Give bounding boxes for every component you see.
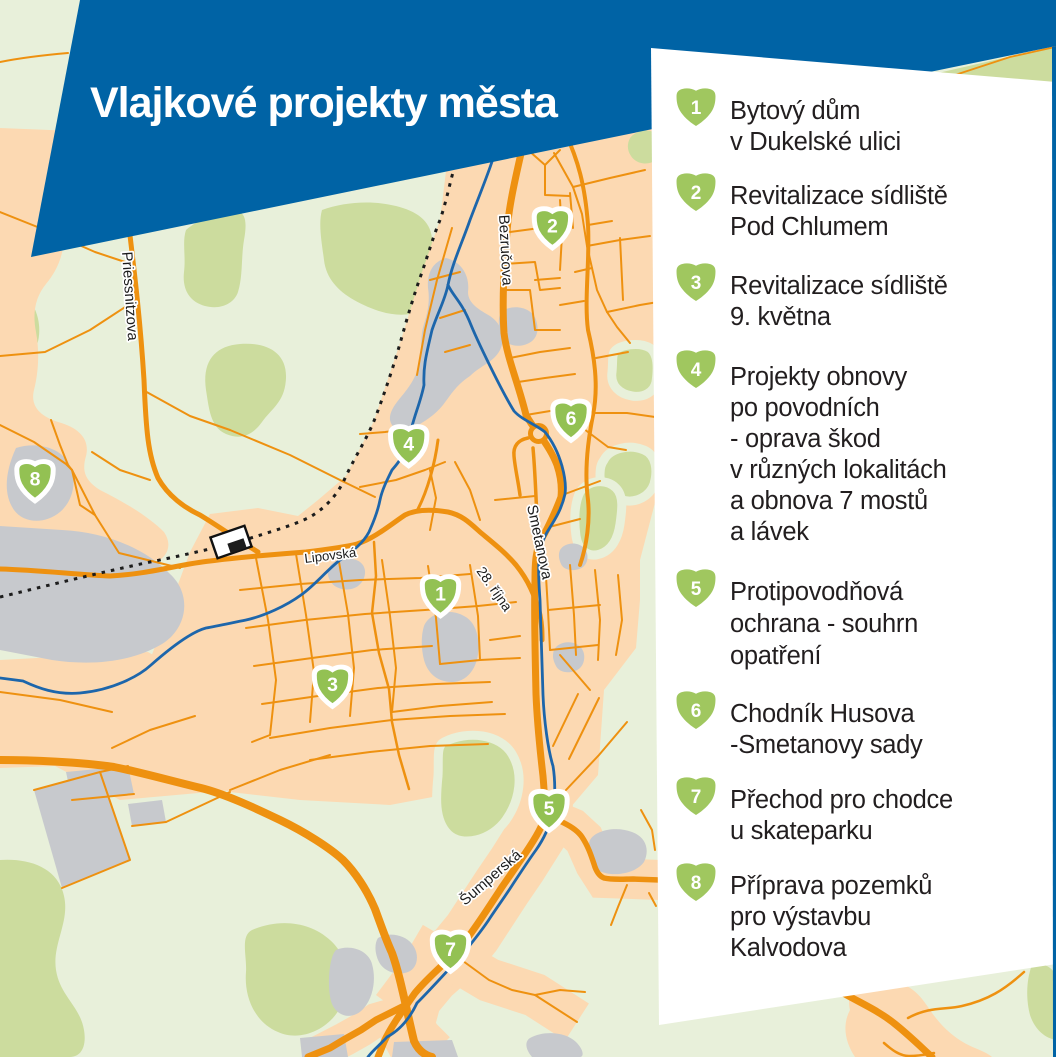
svg-text:6: 6 [691,701,702,722]
svg-text:opatření: opatření [730,642,821,670]
svg-text:v Dukelské ulici: v Dukelské ulici [730,128,901,156]
svg-text:7: 7 [691,787,702,808]
svg-text:v různých lokalitách: v různých lokalitách [730,456,947,484]
svg-text:Protipovodňová: Protipovodňová [730,578,904,606]
svg-text:Projekty obnovy: Projekty obnovy [730,363,907,391]
svg-text:3: 3 [691,273,702,294]
svg-text:Příprava pozemků: Příprava pozemků [730,872,932,900]
svg-text:- oprava škod: - oprava škod [730,425,881,453]
svg-text:Vlajkové projekty města: Vlajkové projekty města [90,79,559,127]
svg-text:2: 2 [547,216,558,238]
svg-text:7: 7 [445,939,456,961]
svg-text:9. května: 9. května [730,303,832,331]
svg-text:a obnova 7 mostů: a obnova 7 mostů [730,487,928,515]
svg-text:Revitalizace sídliště: Revitalizace sídliště [730,272,948,300]
svg-text:5: 5 [691,579,702,600]
svg-text:8: 8 [30,469,41,491]
svg-text:4: 4 [691,360,702,381]
svg-text:po povodních: po povodních [730,394,880,422]
svg-text:a lávek: a lávek [730,518,809,546]
svg-text:-Smetanovy sady: -Smetanovy sady [730,731,923,759]
svg-text:2: 2 [691,183,702,204]
svg-text:6: 6 [566,408,577,430]
svg-text:pro výstavbu: pro výstavbu [730,903,871,931]
svg-text:ochrana - souhrn: ochrana - souhrn [730,610,918,638]
svg-text:Pod Chlumem: Pod Chlumem [730,213,888,241]
svg-text:1: 1 [435,584,446,606]
svg-text:Chodník Husova: Chodník Husova [730,700,915,728]
svg-text:4: 4 [403,434,414,456]
svg-text:Přechod pro chodce: Přechod pro chodce [730,786,953,814]
svg-text:5: 5 [544,798,555,820]
svg-text:3: 3 [327,674,338,696]
svg-text:1: 1 [691,98,702,119]
svg-text:Revitalizace sídliště: Revitalizace sídliště [730,182,948,210]
svg-text:Bytový dům: Bytový dům [730,97,860,125]
svg-text:u skateparku: u skateparku [730,817,872,845]
svg-text:Kalvodova: Kalvodova [730,934,848,962]
svg-text:8: 8 [691,873,702,894]
